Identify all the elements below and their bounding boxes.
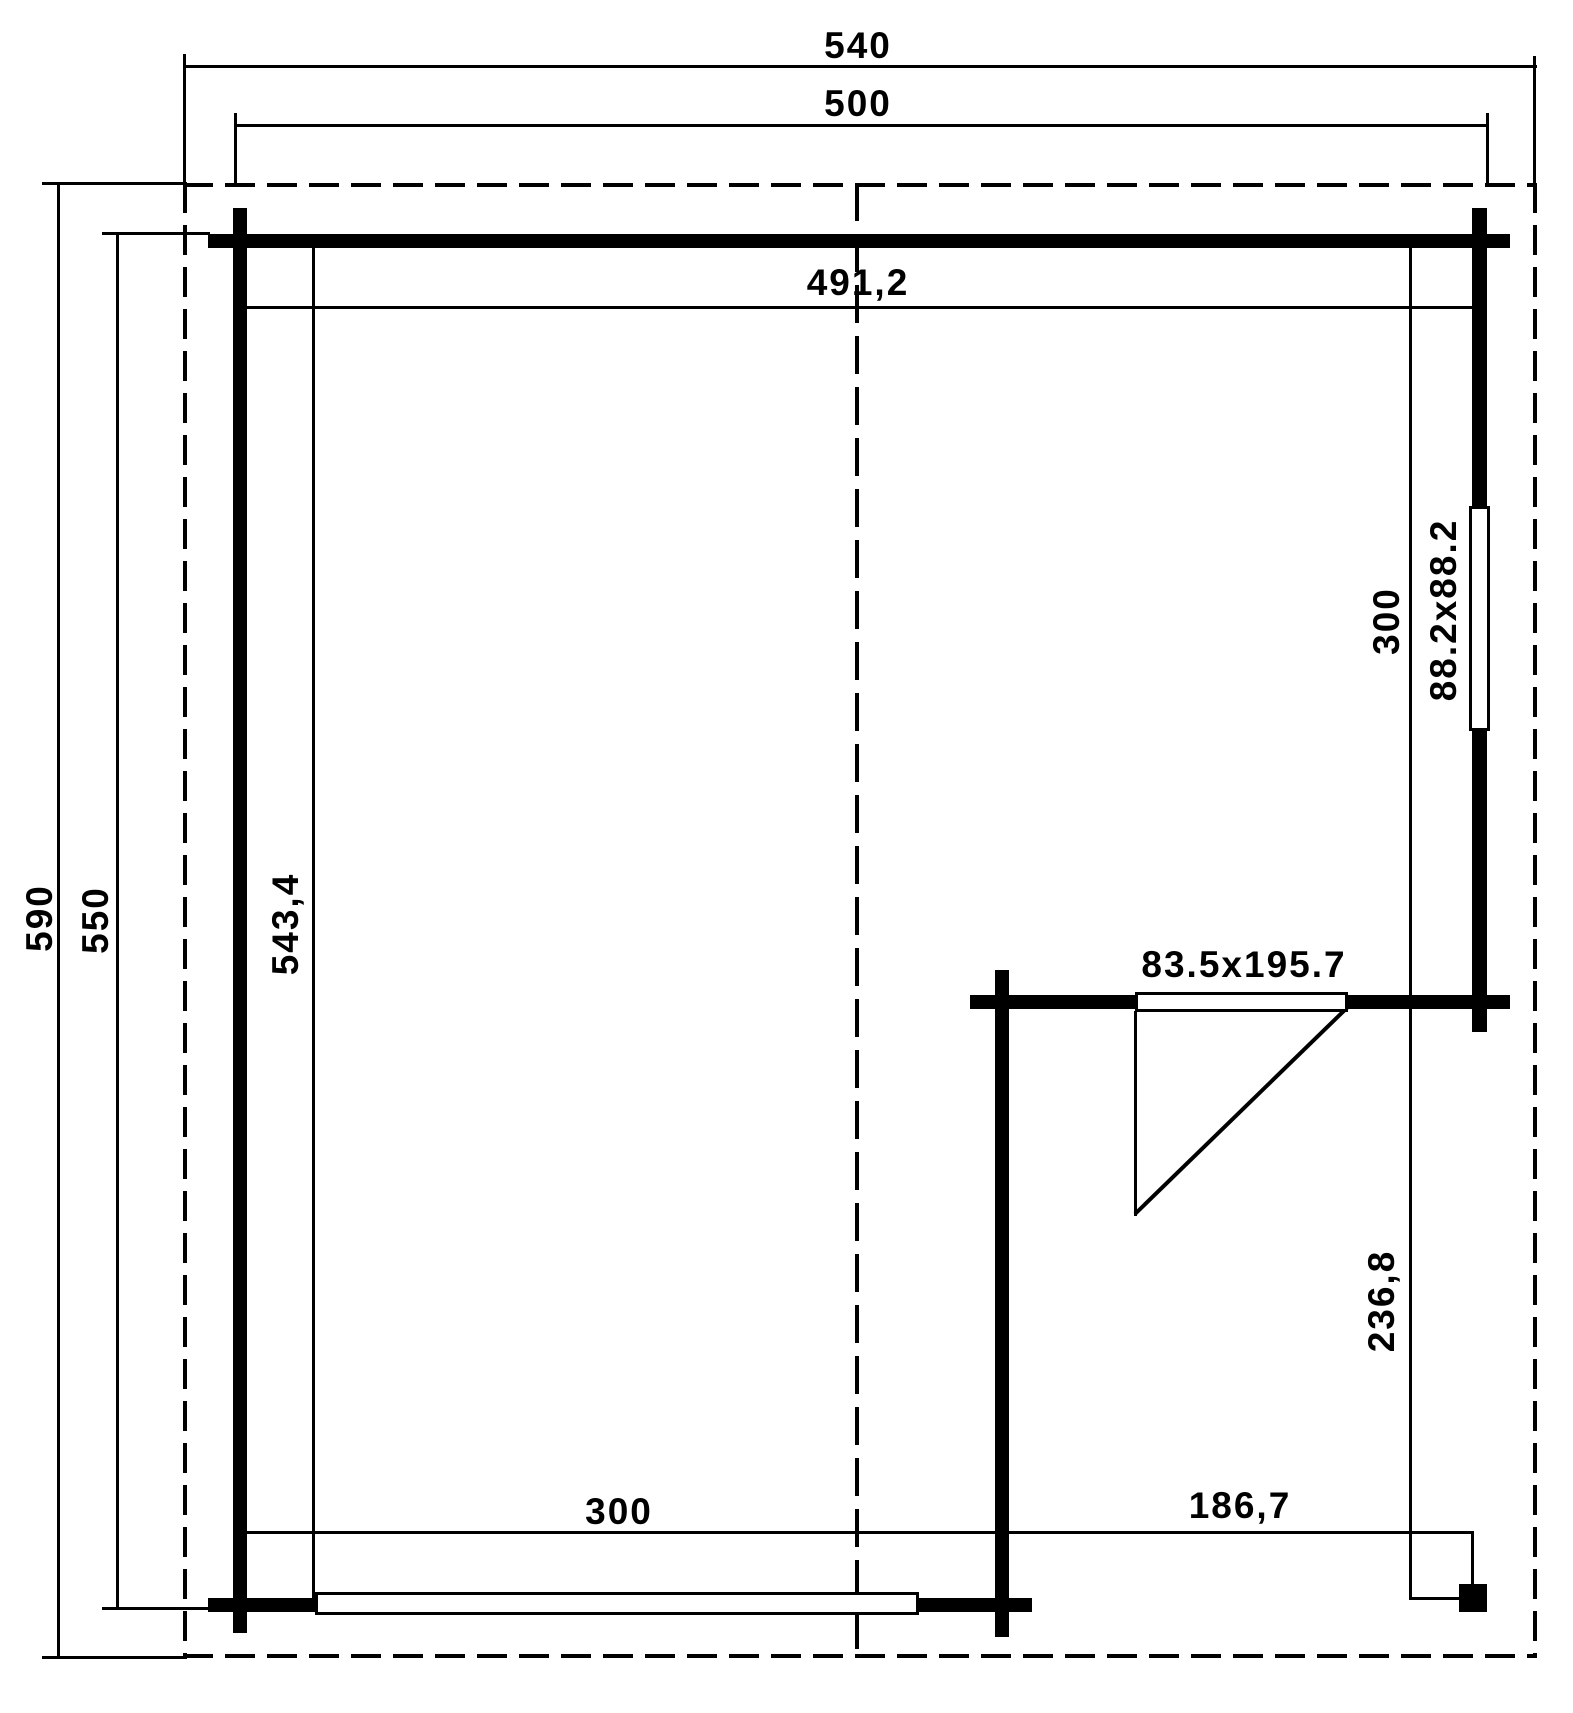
dim-terrace-width-tick-right (1471, 1531, 1474, 1587)
door-size-label: 83.5x195.7 (1141, 944, 1346, 986)
dim-terrace-width-label: 186,7 (1189, 1485, 1292, 1527)
dim-terrace-depth-label: 236,8 (1361, 1250, 1403, 1353)
dim-inner-depth-label: 543,4 (265, 873, 307, 976)
dim-roof-depth-tick-top (42, 182, 187, 185)
dim-outer-depth-tick-top (102, 232, 210, 235)
window-right (1469, 506, 1490, 731)
dim-room-depth-right-line (1409, 246, 1412, 996)
roof-ridge-centerline (855, 183, 859, 1656)
dim-bottom-widths-line (247, 1531, 1474, 1534)
dim-roof-width-ext-left (183, 54, 186, 184)
roof-outline-left (183, 183, 187, 1658)
door-swing-diagonal (1134, 1006, 1349, 1215)
roof-outline-bottom (183, 1654, 1537, 1658)
dim-inner-depth-line (312, 247, 315, 1599)
dim-outer-width-ext-right (1486, 113, 1489, 185)
wall-left (233, 208, 247, 1633)
wall-top (208, 234, 1510, 248)
wall-middle-vertical (995, 970, 1009, 1637)
door-swing-edge (1134, 1011, 1137, 1216)
dim-roof-width-ext-right (1533, 56, 1536, 184)
dim-outer-depth-tick-bottom (102, 1607, 210, 1610)
dim-inner-width-label: 491,2 (807, 262, 910, 304)
dim-outer-depth-label: 550 (75, 886, 117, 954)
roof-outline-right (1533, 183, 1537, 1658)
dim-terrace-depth-line (1409, 1009, 1412, 1600)
dim-roof-depth-label: 590 (19, 884, 61, 952)
terrace-corner-post (1459, 1584, 1487, 1612)
window-bottom (315, 1592, 919, 1615)
roof-outline-top (183, 183, 1537, 187)
dim-room-depth-right-label: 300 (1366, 587, 1408, 655)
floor-plan-canvas: 540 500 491,2 590 550 543,4 300 88.2x88.… (0, 0, 1573, 1713)
dim-roof-width-label: 540 (824, 25, 892, 67)
window-right-size-label: 88.2x88.2 (1423, 519, 1465, 702)
dim-terrace-depth-tick-bottom (1409, 1597, 1461, 1600)
dim-inner-width-line (247, 306, 1473, 309)
dim-room-width-bottom-label: 300 (585, 1491, 653, 1533)
door-opening (1135, 992, 1348, 1012)
dim-outer-width-ext-left (234, 113, 237, 185)
dim-outer-width-label: 500 (824, 83, 892, 125)
dim-roof-depth-tick-bottom (42, 1656, 187, 1659)
